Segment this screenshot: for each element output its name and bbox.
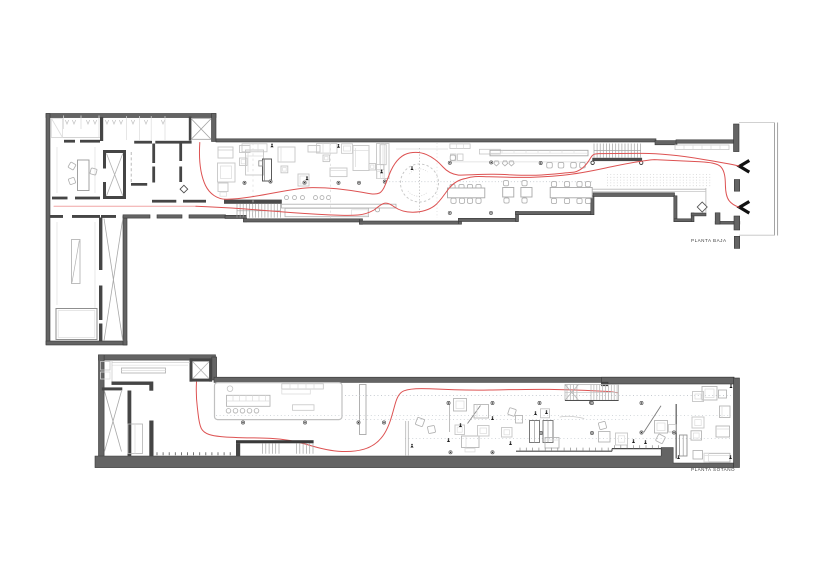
svg-text:PLANTA BAJA: PLANTA BAJA (691, 238, 727, 243)
svg-text:PLANTA SOTANO: PLANTA SOTANO (691, 467, 735, 472)
